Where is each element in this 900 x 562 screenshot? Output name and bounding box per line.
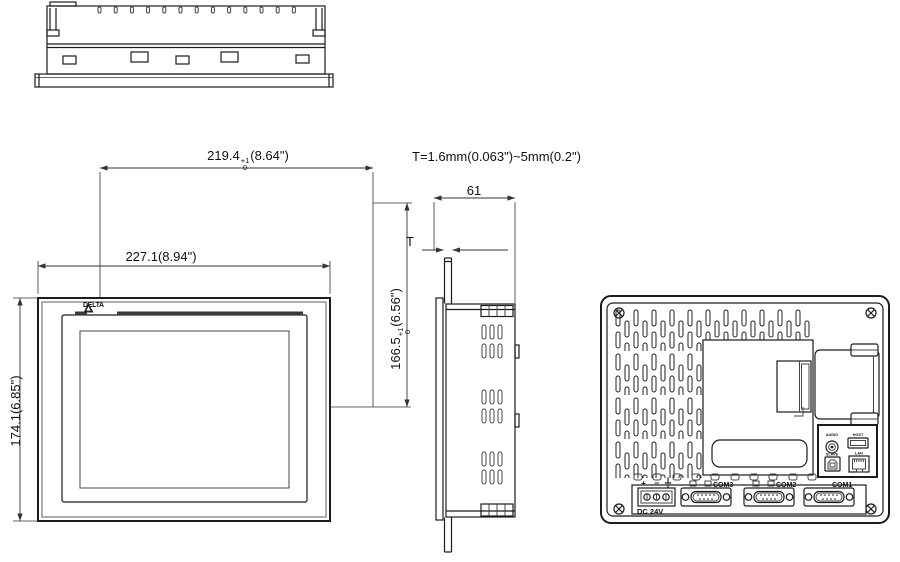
- side-clip-top: [515, 345, 519, 358]
- power-terminal: [638, 488, 675, 506]
- audio-label: AUDIO: [826, 433, 838, 437]
- dim-cutout-width-value: 219.4: [207, 148, 240, 163]
- panel-thickness-spec: T=1.6mm(0.063")~5mm(0.2"): [412, 150, 581, 164]
- side-vent-slots: [482, 325, 502, 484]
- dim-cutout-height-value: 166.5: [388, 337, 403, 370]
- side-body: [446, 304, 515, 517]
- dim-cutout-width-inches: (8.64"): [250, 148, 289, 163]
- dim-cutout-height-inches: (6.56"): [388, 288, 403, 327]
- front-bezel-bevel: [42, 302, 326, 517]
- front-view: [38, 298, 330, 521]
- drawing-canvas: AUDIO HOST SLAVE LAN + − DC 24V: [0, 0, 900, 562]
- dim-cutout-height-tolerance: +10: [397, 328, 411, 337]
- expansion-cover: [815, 344, 879, 425]
- usb-slave-label: SLAVE: [826, 453, 839, 457]
- dim-outer-height: 174.1(6.85"): [8, 352, 23, 470]
- top-view: [35, 2, 333, 87]
- dim-cutout-height: 166.5+10(6.56"): [388, 251, 411, 407]
- com1-label: COM1: [832, 482, 852, 489]
- front-inner-bezel: [62, 315, 307, 502]
- thickness-t-label: T: [406, 235, 414, 249]
- side-view: [436, 258, 519, 552]
- side-bezel-plate: [436, 298, 443, 520]
- dimension-drawing: AUDIO HOST SLAVE LAN + − DC 24V: [0, 0, 900, 562]
- vent-slots-left: [614, 307, 702, 478]
- power-label: DC 24V: [637, 507, 663, 516]
- delta-triangle-icon: [83, 302, 94, 314]
- rear-center-recess: [703, 340, 813, 475]
- com3-label: COM3: [713, 482, 733, 489]
- dim-depth: 61: [451, 184, 497, 198]
- top-view-left-bracket: [47, 2, 76, 36]
- vent-slots-top: [702, 307, 812, 344]
- side-clip-bottom: [515, 414, 519, 427]
- rear-view: AUDIO HOST SLAVE LAN + − DC 24V: [601, 296, 889, 523]
- usb-host-label: HOST: [853, 433, 864, 437]
- top-view-front-flange: [35, 74, 333, 87]
- dimension-lines: [13, 168, 515, 521]
- dim-outer-width: 227.1(8.94"): [100, 250, 222, 264]
- top-view-notches: [98, 7, 295, 13]
- top-view-cutouts: [63, 52, 309, 64]
- polarity-text: + −: [641, 478, 662, 488]
- io-port-box: AUDIO HOST SLAVE LAN: [818, 425, 877, 477]
- top-view-right-bracket: [313, 8, 325, 36]
- com1-connector: [804, 488, 854, 506]
- com2-label: COM2: [776, 482, 796, 489]
- com3-connector: [681, 488, 731, 506]
- com2-connector: [744, 488, 794, 506]
- lan-label: LAN: [855, 452, 863, 456]
- brand-logo: DELTA: [83, 302, 104, 309]
- dim-cutout-width: 219.4+10(8.64"): [170, 149, 326, 171]
- touch-screen: [80, 331, 289, 488]
- dim-cutout-width-tolerance: +10: [241, 157, 250, 171]
